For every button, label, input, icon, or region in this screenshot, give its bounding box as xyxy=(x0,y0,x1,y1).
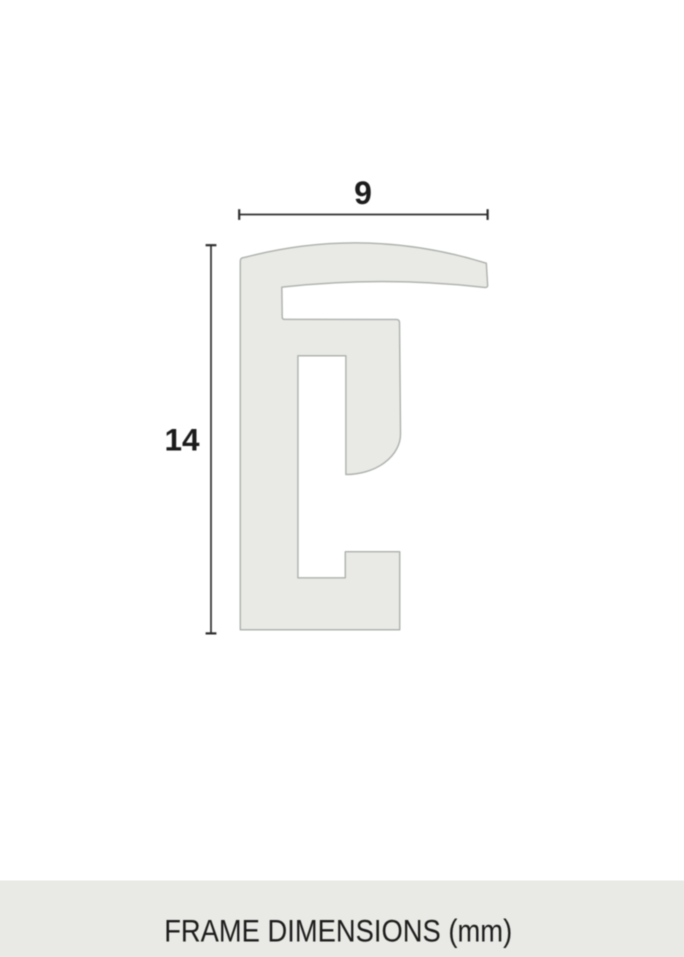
svg-text:14: 14 xyxy=(164,422,200,458)
svg-text:FRAME DIMENSIONS (mm): FRAME DIMENSIONS (mm) xyxy=(164,912,512,948)
svg-text:9: 9 xyxy=(354,175,372,211)
